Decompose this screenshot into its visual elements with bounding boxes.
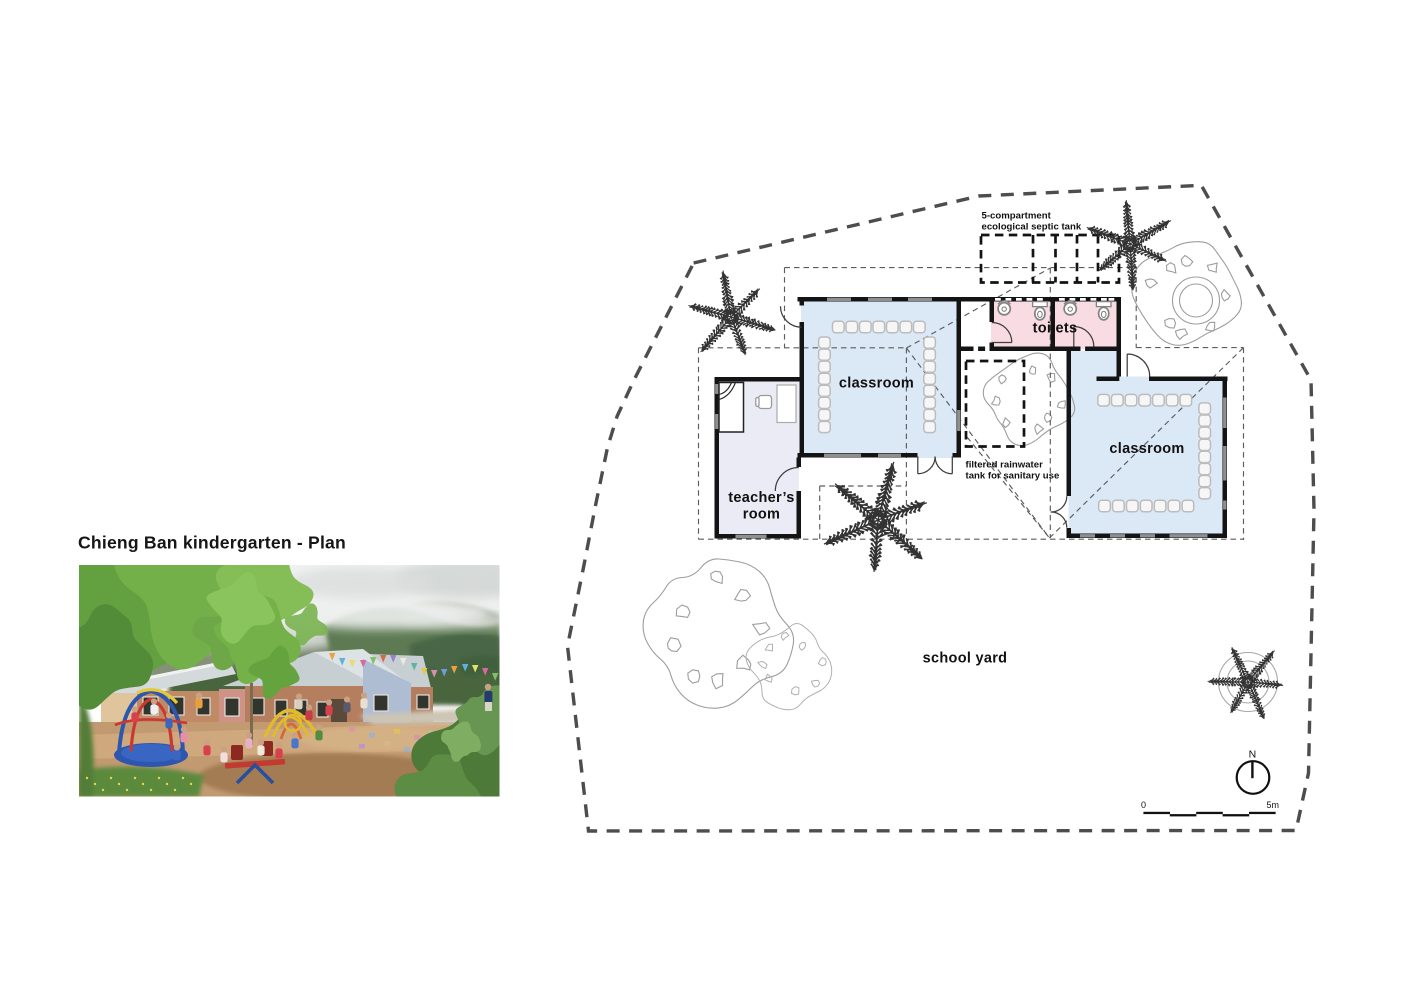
svg-text:teacher’s: teacher’s (728, 490, 794, 506)
svg-text:5m: 5m (1267, 800, 1280, 810)
svg-text:0: 0 (1141, 800, 1146, 810)
svg-text:classroom: classroom (839, 376, 914, 392)
svg-text:tank for sanitary use: tank for sanitary use (966, 471, 1060, 482)
svg-text:ecological septic tank: ecological septic tank (982, 222, 1082, 233)
svg-text:filtered rainwater: filtered rainwater (966, 460, 1044, 471)
svg-text:toilets: toilets (1033, 321, 1078, 337)
svg-text:school yard: school yard (923, 651, 1008, 667)
svg-text:5-compartment: 5-compartment (982, 211, 1052, 222)
svg-text:Chieng Ban kindergarten - Plan: Chieng Ban kindergarten - Plan (78, 533, 346, 553)
svg-text:room: room (743, 507, 780, 523)
svg-text:classroom: classroom (1109, 441, 1184, 457)
svg-text:N: N (1249, 749, 1257, 761)
